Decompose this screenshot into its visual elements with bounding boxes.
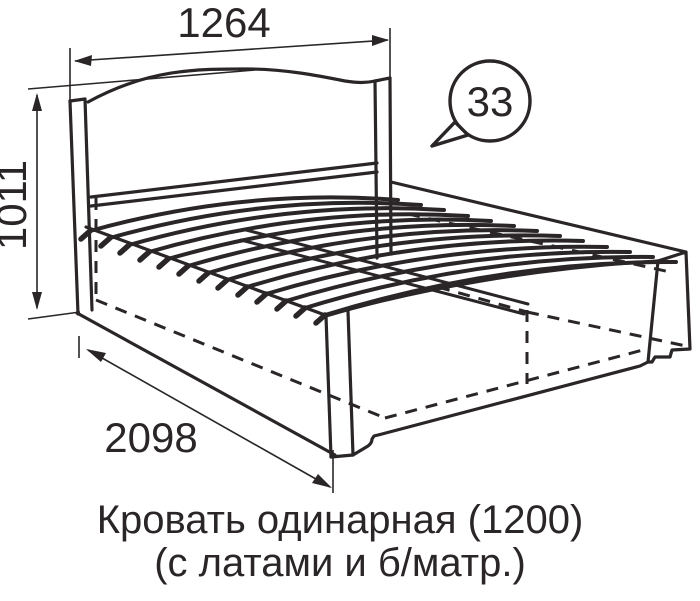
hidden-edge-inner-bottom-foot [385,350,643,418]
frame-corner-leg-front [326,316,331,457]
dim-1264-arrow-right [372,35,389,46]
bed-drawing-canvas: 1264 1011 2098 33 Кровать од [0,0,700,601]
slat-foot [277,301,286,309]
headboard-right-post-inner [390,78,391,254]
slat-foot [179,266,188,274]
caption-group: Кровать одинарная (1200) (с латами и б/м… [97,498,584,585]
footboard-bottom-edge-with-notch [353,362,648,455]
slat-foot [199,273,208,281]
dim-1011-label: 1011 [0,160,35,250]
dim-2098-label: 2098 [104,414,197,461]
headboard-right-post-outer [375,81,377,258]
headboard-left-post-outer [70,101,78,314]
hidden-edge-to-far-corner [527,312,686,346]
frame-corner-leg-back [348,311,353,455]
callout-33-group: 33 [432,61,530,146]
slat-foot [257,294,266,302]
dim-2098-arrow-right [312,474,332,488]
slat-foot [140,252,149,260]
slat-foot [101,238,110,246]
headboard-curved-top [88,69,375,102]
caption-line-1: Кровать одинарная (1200) [97,498,584,542]
slats-group [81,197,676,323]
slat-foot [159,259,168,267]
dim-1011-arrow-bottom [32,292,42,310]
footboard-right-edge [648,261,658,362]
dim-2098-arrow-left [86,349,106,362]
frame-corner-leg-bottom [331,455,353,457]
dimension-1011-group: 1011 [0,70,255,319]
dim-1011-ext-top [28,70,255,89]
caption-line-2: (с латами и б/матр.) [154,541,526,585]
slat-foot [238,287,247,295]
dim-1011-ext-bottom [28,312,80,319]
headboard-rail-top [91,163,377,197]
hidden-edge-inner-bottom-near [96,300,385,418]
slat-foot [296,308,305,316]
dimension-2098-group: 2098 [79,336,333,493]
bed-technical-drawing: 1264 1011 2098 33 Кровать од [0,0,700,601]
slat-foot [120,245,129,253]
callout-number: 33 [467,78,514,125]
dimension-1264-group: 1264 [70,0,390,108]
dim-1264-arrow-left [74,55,92,66]
dim-1264-label: 1264 [177,0,270,46]
slat-foot [218,280,227,288]
dim-1011-arrow-top [32,93,42,111]
headboard-left-post-top [70,99,85,101]
headboard-right-post-top [375,78,390,81]
